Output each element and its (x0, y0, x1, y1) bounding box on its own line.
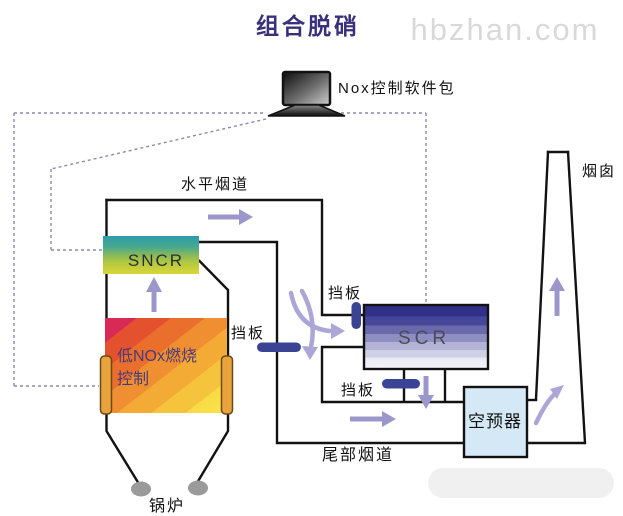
computer-icon (268, 72, 345, 116)
damper-scr-outlet (382, 379, 420, 389)
tail-flue-label: 尾部烟道 (322, 446, 394, 464)
chimney-right-edge (568, 152, 585, 443)
boiler-drain-left (131, 482, 151, 497)
diagram-svg: 组合脱硝 hbzhan.com Nox控制软件包 水平烟道 烟囱 尾部烟道 锅炉… (0, 0, 623, 516)
damper-scr-inlet (352, 302, 362, 329)
low-nox-label-line1: 低NOx燃烧 (117, 347, 197, 365)
flow-into-scr-arrowhead (331, 323, 345, 339)
site-watermark: hbzhan.com (411, 12, 600, 47)
low-nox-combustion-zone (105, 318, 227, 413)
boiler-drain-right (188, 481, 208, 496)
chimney-up-arrowhead (549, 277, 565, 291)
horizontal-flue-label: 水平烟道 (181, 176, 249, 193)
damper-boiler-side (257, 343, 301, 353)
preheater-to-chimney-arrow (536, 393, 556, 423)
scr-label: SCR (398, 328, 450, 349)
burner-bar-left (101, 356, 112, 414)
page-title: 组合脱硝 (256, 13, 360, 39)
low-nox-label-line2: 控制 (117, 370, 149, 388)
sncr-label: SNCR (128, 251, 184, 270)
monitor-base (268, 105, 345, 116)
chimney-outline (536, 152, 585, 443)
boiler-label: 锅炉 (149, 497, 185, 515)
air-preheater-label: 空预器 (468, 412, 522, 431)
bypass-down-arrowhead (302, 346, 318, 360)
chimney-left-edge (536, 152, 548, 399)
monitor-screen (283, 72, 330, 105)
damper-scr-inlet-label: 挡板 (328, 284, 362, 302)
horizontal-flue-arrowhead (239, 209, 253, 225)
control-line-diagonal (51, 119, 266, 169)
combined-denox-diagram: 组合脱硝 hbzhan.com Nox控制软件包 水平烟道 烟囱 尾部烟道 锅炉… (0, 0, 623, 516)
burner-bar-right (222, 356, 233, 414)
boiler-up-arrowhead (146, 277, 162, 292)
faded-watermark-bar (428, 468, 614, 498)
chimney-label: 烟囱 (582, 163, 616, 180)
tail-flue-arrowhead (382, 411, 396, 427)
damper-boiler-side-label: 挡板 (231, 324, 265, 342)
control-pc-label: Nox控制软件包 (338, 80, 456, 97)
damper-scr-outlet-label: 挡板 (341, 381, 375, 399)
